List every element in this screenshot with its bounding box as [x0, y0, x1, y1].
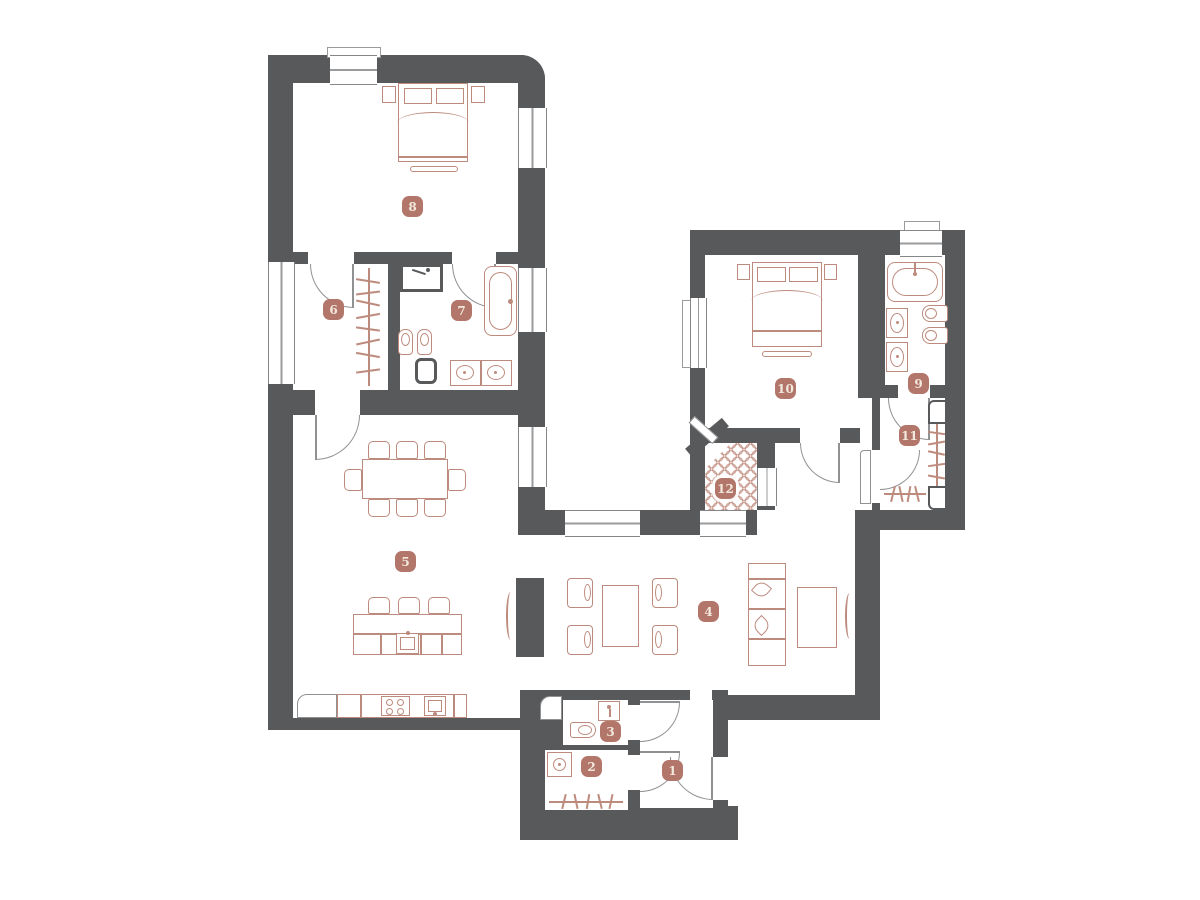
wall-top-right-wing-a — [690, 230, 900, 255]
wall-rw-right — [945, 230, 965, 530]
dining-chair — [424, 499, 446, 517]
sink-drain — [494, 371, 497, 374]
island-divider — [420, 634, 422, 655]
sofa-seat-line — [748, 578, 786, 580]
floor-plan: 1 2 3 4 5 6 7 8 9 10 11 12 — [0, 0, 1200, 900]
window-dining-right — [518, 427, 547, 487]
burner — [386, 699, 393, 706]
closet-rail — [368, 268, 370, 386]
window-closet6-left — [268, 262, 295, 384]
sink-drain — [896, 355, 899, 358]
wall-top-left-wing — [268, 55, 545, 83]
wall-divider-6-7 — [388, 264, 400, 390]
sink-divider — [480, 360, 482, 386]
entrance-door-opening — [713, 757, 728, 800]
room-badge-8: 8 — [402, 196, 423, 217]
nightstand — [471, 86, 485, 103]
sofa-seat-line — [748, 638, 786, 640]
wall-room11-left-a — [872, 398, 880, 450]
wall-room12-right-a — [757, 443, 775, 468]
door-leaf — [640, 751, 680, 753]
island-sink-basin — [400, 637, 415, 650]
entry-block-stub — [728, 806, 738, 840]
window-living-band-2 — [700, 510, 746, 537]
island-faucet — [406, 631, 410, 635]
door-opening-room2 — [628, 755, 640, 790]
wall-living-right — [855, 530, 880, 720]
wall-room9-bottom-b — [930, 385, 945, 398]
nightstand — [737, 264, 750, 280]
dining-chair — [448, 469, 466, 491]
door-leaf — [711, 757, 713, 800]
shower — [400, 264, 443, 292]
wall-right-wing-c — [518, 332, 545, 427]
counter-divider — [453, 694, 455, 718]
bed-bench — [410, 166, 458, 172]
closet-shelf — [928, 486, 947, 510]
window-bath7-right — [518, 268, 547, 332]
kitchen-sink-basin — [428, 700, 442, 712]
bidet-9-bowl — [925, 330, 937, 341]
burner — [397, 699, 404, 706]
toilet-bowl — [401, 333, 410, 346]
door-arc-bedroom10 — [800, 443, 840, 483]
kitchen-faucet — [433, 712, 437, 716]
wall-room11-left-b — [872, 503, 880, 510]
nightstand — [382, 86, 396, 103]
wall-int-d — [293, 390, 315, 415]
bathtub-faucet — [913, 272, 917, 276]
wall-right-wing-a — [518, 55, 545, 108]
wall-rw-bottom — [855, 510, 965, 530]
tv-living-icon — [845, 593, 854, 639]
dining-chair — [424, 441, 446, 459]
wall-band-c — [746, 510, 757, 535]
wall-divider-10-9 — [858, 255, 885, 385]
bathtub-faucet-line — [914, 262, 916, 272]
door-leaf — [838, 443, 840, 483]
window-bath9-top — [900, 230, 942, 257]
island-divider — [441, 634, 443, 655]
pillow — [404, 88, 432, 104]
pillow — [757, 267, 786, 282]
dining-chair — [396, 499, 418, 517]
closet-rail — [884, 493, 926, 495]
sink-drain — [896, 321, 899, 324]
armchair-cushion — [655, 631, 662, 648]
door-leaf-closet11 — [860, 450, 871, 504]
sofa-seat-line — [748, 608, 786, 610]
room-badge-4: 4 — [698, 601, 719, 622]
room-badge-9: 9 — [908, 373, 929, 394]
window-bedroom8-top — [330, 55, 377, 85]
island-divider — [380, 634, 382, 655]
room-12-corner-cut — [705, 443, 731, 469]
coffee-table — [602, 585, 639, 647]
room-badge-11: 11 — [899, 425, 920, 446]
room-badge-7: 7 — [451, 300, 472, 321]
armchair-cushion — [584, 584, 591, 601]
wall-room12-right-b — [757, 506, 775, 510]
armchair-cushion — [584, 631, 591, 648]
nightstand — [824, 264, 837, 280]
counter-divider — [360, 694, 362, 718]
burner — [397, 708, 404, 715]
wall-band-b — [640, 510, 700, 535]
dining-chair — [368, 499, 390, 517]
room-badge-2: 2 — [581, 756, 602, 777]
washing-machine-center — [558, 763, 561, 766]
room-badge-1: 1 — [662, 760, 683, 781]
door-leaf-kitchen-corridor — [540, 696, 562, 720]
toilet-9-bowl — [925, 308, 937, 319]
window-room12 — [757, 468, 777, 506]
bed-foot-line — [752, 330, 822, 332]
burner — [386, 708, 393, 715]
wall-int-e — [360, 390, 518, 415]
room-badge-5: 5 — [395, 551, 416, 572]
pillow — [789, 267, 818, 282]
armchair-cushion — [655, 584, 662, 601]
wall-living-bottom — [728, 695, 880, 720]
wc-toilet-bowl — [578, 725, 592, 735]
pillow — [436, 88, 464, 104]
sink-drain — [463, 371, 466, 374]
dining-chair — [368, 441, 390, 459]
wc-sink-line — [609, 709, 611, 717]
room-badge-6: 6 — [323, 299, 344, 320]
bed-bench — [762, 351, 812, 357]
wall-rw-left-a — [690, 255, 705, 298]
door-leaf — [640, 701, 680, 703]
bathtub-faucet — [508, 299, 513, 304]
wall-bottom-left-wing — [268, 718, 545, 730]
room-6-closet — [296, 264, 388, 390]
bath-cabinet — [415, 358, 437, 384]
shower-head-icon — [426, 268, 430, 272]
window-bedroom8-right — [518, 108, 547, 168]
room-badge-10: 10 — [775, 378, 796, 399]
wall-room9-bottom-a — [858, 385, 898, 398]
room-badge-12: 12 — [715, 478, 736, 499]
door-opening-room3 — [628, 705, 640, 740]
bar-stool — [368, 597, 390, 614]
tv-partition-wall — [516, 578, 544, 657]
window-living-band-1 — [565, 510, 640, 537]
kitchen-window-niche — [297, 694, 337, 718]
wall-int-b — [354, 252, 452, 264]
bed-foot-line — [398, 156, 468, 158]
wall-int-c — [496, 252, 518, 264]
wall-bed10-bottom-b — [840, 428, 860, 443]
bidet-bowl — [420, 333, 429, 346]
tv-kitchen-icon — [506, 592, 515, 640]
closet-shelf — [928, 400, 947, 424]
dining-chair — [396, 441, 418, 459]
dining-chair — [344, 469, 362, 491]
wall-left-upper — [268, 83, 293, 262]
bar-stool — [398, 597, 420, 614]
dining-table — [362, 459, 448, 499]
wall-int-a — [293, 252, 308, 264]
bar-stool — [428, 597, 450, 614]
wall-right-wing-d — [518, 487, 545, 510]
wall-left-lower — [268, 384, 293, 730]
wall-right-wing-b — [518, 168, 545, 268]
console-table — [797, 587, 837, 648]
room-badge-3: 3 — [600, 721, 621, 742]
wall-band-a — [518, 510, 565, 535]
